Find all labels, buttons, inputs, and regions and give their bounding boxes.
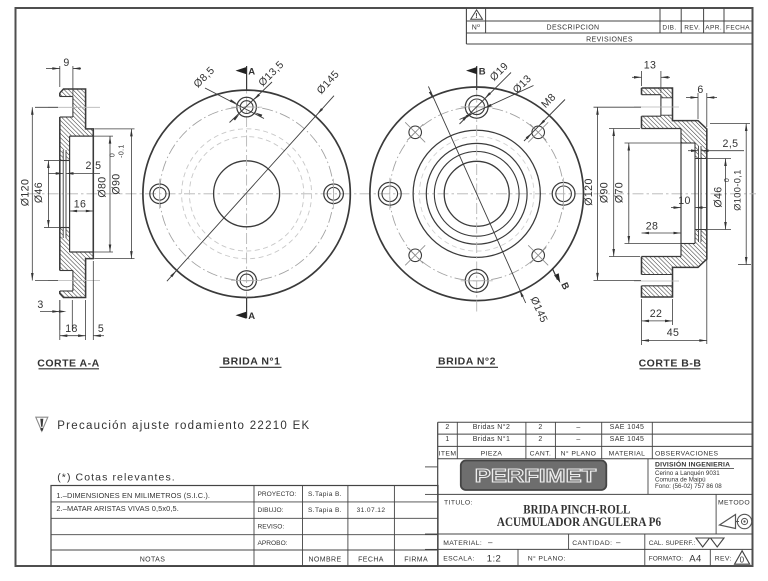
svg-text:OBSERVACIONES: OBSERVACIONES: [655, 450, 719, 457]
svg-text:–: –: [616, 538, 621, 547]
svg-text:SAE 1045: SAE 1045: [610, 436, 645, 443]
svg-text:2,5: 2,5: [723, 138, 739, 150]
svg-text:SAE 1045: SAE 1045: [610, 424, 645, 431]
svg-text:BRIDA N°1: BRIDA N°1: [223, 356, 281, 368]
svg-text:B: B: [479, 66, 486, 77]
svg-text:BRIDA N°2: BRIDA N°2: [438, 356, 496, 368]
svg-text:S.Tapia B.: S.Tapia B.: [308, 491, 342, 498]
svg-text:APR.: APR.: [705, 25, 722, 32]
svg-text:Fono: (56-02) 757 86 08: Fono: (56-02) 757 86 08: [655, 483, 722, 490]
svg-text:6: 6: [697, 84, 703, 96]
svg-text:ACUMULADOR ANGULERA P6: ACUMULADOR ANGULERA P6: [497, 514, 662, 529]
svg-text:REV:: REV:: [715, 556, 732, 563]
svg-text:PERFIMET: PERFIMET: [475, 466, 597, 486]
svg-text:N° PLANO: N° PLANO: [561, 449, 597, 457]
svg-text:PIEZA: PIEZA: [481, 450, 503, 457]
svg-text:18: 18: [65, 323, 78, 335]
svg-text:DIVISIÓN INGENIERIA: DIVISIÓN INGENIERIA: [655, 460, 730, 469]
svg-text:TITULO:: TITULO:: [444, 500, 473, 507]
svg-text:13: 13: [644, 60, 657, 72]
svg-text:NOTAS: NOTAS: [140, 556, 166, 563]
svg-text:0: 0: [724, 178, 731, 182]
svg-text:5: 5: [98, 323, 104, 335]
svg-text:REVISIONES: REVISIONES: [586, 36, 633, 43]
svg-text:!: !: [475, 13, 478, 20]
svg-text:DESCRIPCION: DESCRIPCION: [546, 25, 599, 32]
svg-text:31.07.12: 31.07.12: [357, 507, 386, 514]
svg-text:METODO: METODO: [718, 499, 750, 506]
svg-text:FIRMA: FIRMA: [404, 556, 428, 563]
svg-text:0: 0: [110, 153, 117, 157]
svg-text:Ø80: Ø80: [96, 176, 108, 197]
svg-text:Ø120: Ø120: [583, 178, 595, 206]
svg-text:A: A: [248, 311, 255, 322]
svg-text:2: 2: [538, 436, 542, 443]
svg-text:22: 22: [650, 308, 663, 320]
svg-text:Ø70: Ø70: [614, 182, 626, 203]
svg-text:A4: A4: [689, 554, 701, 565]
svg-text:REVISO:: REVISO:: [258, 524, 285, 531]
svg-text:1: 1: [445, 436, 449, 443]
svg-text:Bridas N°1: Bridas N°1: [473, 435, 511, 443]
svg-text:3: 3: [37, 299, 43, 311]
svg-text:CORTE B-B: CORTE B-B: [639, 358, 702, 370]
svg-text:MATERIAL:: MATERIAL:: [443, 540, 482, 547]
svg-text:FECHA: FECHA: [726, 25, 750, 32]
svg-text:S.Tapia B.: S.Tapia B.: [308, 507, 342, 514]
svg-text:2.–MATAR ARISTAS VIVAS 0,5x: 2.–MATAR ARISTAS VIVAS 0,5x0,5.: [56, 504, 178, 513]
svg-text:Ø90: Ø90: [111, 173, 123, 194]
svg-text:1.–DIMENSIONES EN MILIMETROS: 1.–DIMENSIONES EN MILIMETROS (S.I.C.).: [56, 491, 210, 500]
svg-text:10: 10: [678, 195, 691, 207]
svg-text:Ø46: Ø46: [712, 186, 724, 207]
svg-text:2: 2: [538, 424, 542, 431]
svg-text:CORTE A-A: CORTE A-A: [37, 358, 99, 370]
svg-text:–: –: [576, 424, 580, 431]
svg-text:Ø100-0,1: Ø100-0,1: [733, 169, 743, 211]
svg-text:Ø90: Ø90: [599, 182, 611, 203]
svg-text:2: 2: [445, 424, 449, 431]
svg-text:–: –: [488, 538, 493, 547]
svg-text:ESCALA:: ESCALA:: [443, 556, 475, 563]
svg-text:Nº: Nº: [472, 25, 480, 32]
svg-text:ITEM: ITEM: [439, 450, 457, 457]
svg-text:–: –: [576, 436, 580, 443]
svg-text:Ø120: Ø120: [20, 179, 32, 207]
svg-text:DIB.: DIB.: [662, 25, 676, 32]
svg-text:0: 0: [740, 555, 745, 564]
svg-text:APROBO:: APROBO:: [258, 540, 288, 547]
svg-text:A: A: [248, 66, 255, 77]
svg-text:45: 45: [667, 327, 680, 339]
svg-text:CANTIDAD:: CANTIDAD:: [572, 540, 612, 547]
svg-text:FORMATO:: FORMATO:: [649, 556, 684, 563]
svg-text:FECHA: FECHA: [358, 556, 384, 563]
svg-text:Bridas N°2: Bridas N°2: [473, 423, 511, 431]
svg-text:(*) Cotas relevantes.: (*) Cotas relevantes.: [57, 471, 175, 483]
svg-text:28: 28: [646, 221, 659, 233]
svg-text:1:2: 1:2: [487, 554, 501, 565]
svg-text:Ø46: Ø46: [33, 182, 45, 203]
svg-text:2,5: 2,5: [86, 160, 102, 172]
svg-text:16: 16: [74, 199, 87, 211]
svg-text:-0.1: -0.1: [119, 144, 126, 158]
svg-text:CAL. SUPERF.:: CAL. SUPERF.:: [649, 540, 696, 547]
svg-text:NOMBRE: NOMBRE: [308, 556, 341, 563]
svg-text:9: 9: [63, 57, 69, 69]
svg-text:N° PLANO:: N° PLANO:: [528, 555, 566, 563]
svg-text:PROYECTO:: PROYECTO:: [258, 491, 297, 498]
svg-text:MATERIAL: MATERIAL: [609, 450, 646, 457]
svg-text:DIBUJO:: DIBUJO:: [258, 507, 284, 514]
svg-text:CANT.: CANT.: [530, 450, 552, 457]
svg-text:REV.: REV.: [684, 25, 700, 32]
